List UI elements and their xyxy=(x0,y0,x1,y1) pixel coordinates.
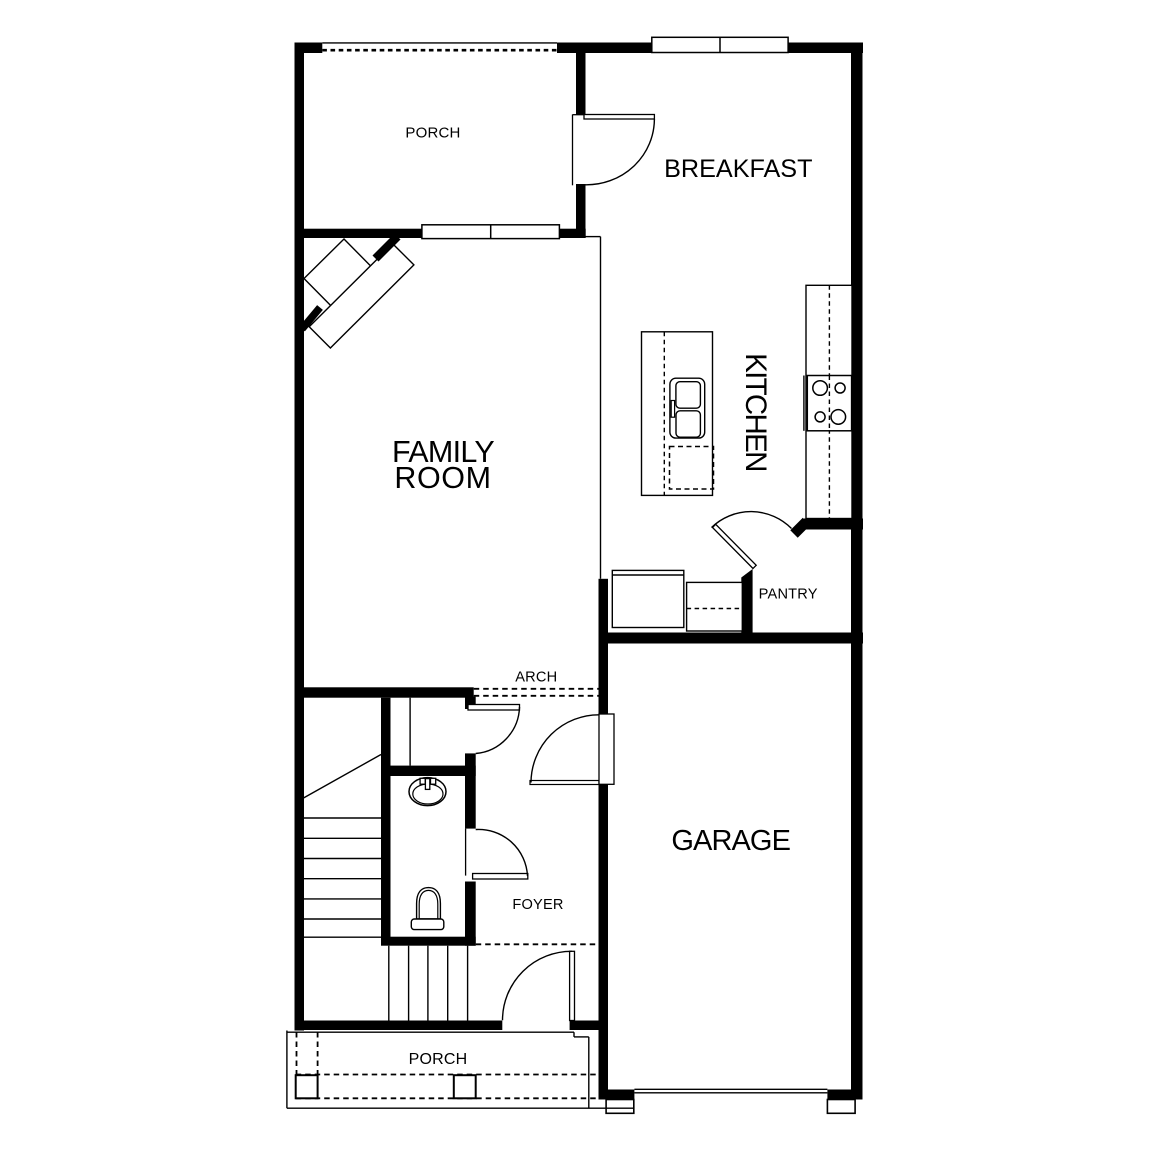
svg-text:BREAKFAST: BREAKFAST xyxy=(664,155,812,183)
svg-text:PANTRY: PANTRY xyxy=(759,587,818,603)
svg-text:PORCH: PORCH xyxy=(409,1051,468,1068)
svg-text:FOYER: FOYER xyxy=(512,897,563,913)
svg-text:ARCH: ARCH xyxy=(515,670,557,686)
svg-text:ROOM: ROOM xyxy=(394,461,491,495)
svg-text:GARAGE: GARAGE xyxy=(671,825,790,857)
svg-text:PORCH: PORCH xyxy=(405,124,460,141)
svg-text:KITCHEN: KITCHEN xyxy=(739,353,772,471)
